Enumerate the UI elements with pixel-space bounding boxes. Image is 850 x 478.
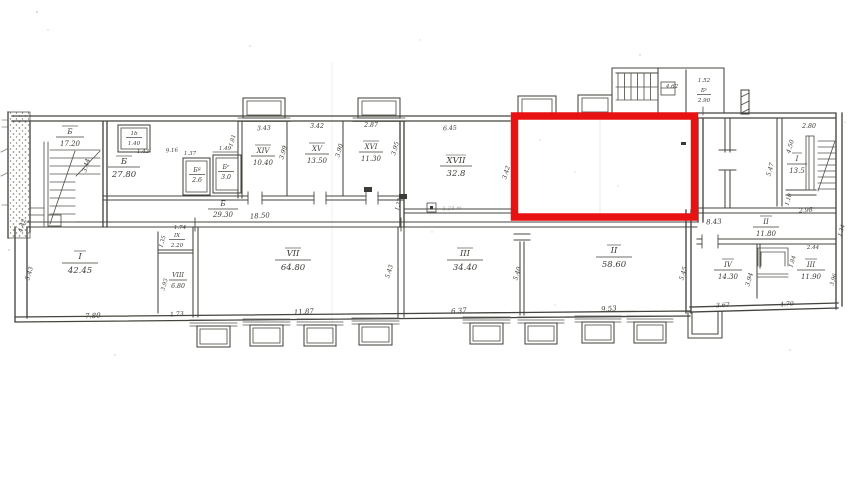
room-area: 17.20 — [60, 140, 81, 148]
room-area: 58.60 — [602, 260, 627, 270]
dim-stair-low-width: 2.98 — [798, 207, 813, 215]
room-area: 42.45 — [67, 266, 92, 276]
room-number: Ƃª — [192, 167, 201, 174]
dim-xiv-width: 3.43 — [257, 125, 271, 133]
dim-stair-right-width: 2.80 — [801, 123, 816, 130]
room-number: IV — [723, 261, 733, 269]
room-label-1b: 1b 1.40 — [126, 131, 142, 147]
room-number: II — [762, 218, 769, 226]
scan-fold-lines — [332, 62, 600, 338]
room-label-ii-main: II 58.60 — [596, 245, 632, 270]
dim-corridor-right: 1.34 — [837, 224, 846, 238]
room-label-xv: XV 13.50 — [305, 143, 329, 165]
room-label-xvii: XVII 32.8 — [440, 155, 472, 179]
room-area: 13.50 — [307, 157, 328, 165]
dim-1b-width: 1.43 — [137, 149, 150, 155]
dim-g27-height: 3.44 — [81, 158, 92, 173]
dim-xvi-height: 3.95 — [390, 141, 401, 156]
room-label-stair-left: Ƃ 17.20 — [56, 126, 84, 148]
room-label-stair-right: I 13.5 — [787, 153, 807, 175]
room-area: 32.8 — [447, 169, 467, 179]
room-label-i: I 42.45 — [62, 251, 98, 276]
dim-xvi-width: 2.87 — [363, 122, 378, 129]
dim-i-height: 5.43 — [24, 266, 35, 281]
highlighted-room[interactable] — [515, 116, 695, 217]
room-area: 13.5 — [789, 167, 805, 175]
room-label-viii: VIII 6.80 — [169, 272, 187, 290]
wall-junction-mark — [364, 187, 372, 192]
dim-mid-right-height: 5.47 — [765, 162, 776, 177]
room-number: XVII — [446, 156, 467, 166]
room-area: 27.80 — [111, 170, 137, 180]
room-area: 2.90 — [697, 98, 711, 104]
room-label-gp: 1.52 Ƃᵖ 2.90 — [697, 78, 711, 104]
note-xvii: 5.24 m — [442, 206, 462, 213]
room-area: 10.40 — [253, 159, 274, 167]
dim-iii-height: 5.40 — [512, 266, 523, 281]
dim-iii-width: 6.37 — [451, 306, 468, 315]
stairs-right — [806, 136, 835, 191]
dim-corridor-length: 18.50 — [250, 211, 271, 220]
dim-ii-width: 9.53 — [601, 304, 618, 313]
room-area: 11.90 — [801, 273, 822, 281]
highlight-rectangle[interactable] — [515, 116, 695, 217]
room-area: 14.30 — [718, 273, 739, 281]
room-number: Ƃᵖ — [700, 88, 708, 94]
room-label-vii: VII 64.80 — [275, 248, 311, 273]
dim-iii-r-height: 3.96 — [829, 273, 838, 287]
dim-ii-height: 5.45 — [678, 266, 689, 281]
room-number: Ƃ — [66, 128, 72, 136]
room-number: III — [459, 249, 471, 259]
dim-viii-height: 3.93 — [160, 278, 169, 292]
room-label-g27: Ƃ 27.80 — [108, 156, 140, 180]
room-area: 29.30 — [212, 211, 234, 219]
top-structure — [616, 73, 749, 115]
room-area: 1.40 — [128, 141, 141, 147]
room-label-ix: IX 2.20 — [169, 233, 185, 249]
room-number: I — [77, 252, 82, 262]
dim-iv-height: 3.94 — [744, 272, 755, 287]
room-number: I — [795, 155, 799, 163]
dim-ge-width: 1.49 — [219, 146, 232, 152]
room-area: 6.80 — [171, 283, 185, 290]
room-number: XVI — [364, 143, 378, 151]
porch — [688, 312, 722, 338]
dim-redbox-height: 3.42 — [501, 165, 512, 180]
dim-closet-gap: 1.37 — [184, 151, 197, 157]
dim-gap-i: 1.73 — [170, 311, 184, 319]
wall-junction-mark — [399, 194, 407, 199]
stove-symbol — [427, 203, 436, 212]
room-area: 2.20 — [170, 243, 184, 249]
dim-xv-width: 3.42 — [310, 123, 324, 130]
dim-i-width: 7.80 — [85, 311, 102, 320]
dim-ix-width: 1.74 — [174, 225, 187, 231]
stairs-left — [30, 142, 100, 226]
chimney-stub — [741, 90, 749, 114]
dim-top-structure: 4.62 — [665, 84, 679, 90]
room-number: XV — [311, 145, 323, 153]
room-area: 3.0 — [221, 174, 231, 181]
dim-vii-height: 5.43 — [384, 264, 395, 279]
room-label-corridor-g: Ƃ 29.30 — [208, 200, 238, 219]
windows-bottom — [190, 312, 722, 347]
room-number: II — [610, 246, 618, 256]
dim-iv-width: 3.62 — [716, 302, 730, 310]
room-label-xvi: XVI 11.30 — [359, 141, 383, 163]
dim-ix-height: 1.35 — [158, 235, 167, 249]
dim-corridor-ii-length: 8.43 — [706, 218, 723, 227]
room-number: VII — [287, 249, 300, 259]
room-label-iii-right: III 11.90 — [797, 259, 825, 281]
room-label-ge: Ƃᵉ 3.0 — [218, 164, 234, 181]
dim-iii-r-d1: 2.44 — [806, 245, 820, 251]
room-label-xiv: XIV 10.40 — [251, 145, 275, 167]
floor-plan-drawing: Ƃ 17.20 4.42 1b 1.40 1.43 Ƃ 27.80 3.44 1… — [0, 0, 850, 478]
wall-tick-in-highlight — [681, 142, 686, 145]
room-number: Ƃ — [120, 157, 128, 167]
dim-vii-width: 11.87 — [294, 307, 315, 316]
room-area: 34.40 — [453, 263, 478, 273]
room-number: XIV — [256, 147, 271, 155]
dim-xvii-width: 6.45 — [443, 125, 457, 133]
dim-top-room-width: 1.52 — [698, 78, 711, 84]
room-label-iv: IV 14.30 — [714, 259, 742, 281]
dim-closets-width: 9.16 — [166, 148, 179, 155]
stipple-wall — [1, 112, 30, 238]
room-label-ga: Ƃª 2.6 — [189, 167, 205, 184]
room-label-iii-main: III 34.40 — [447, 248, 483, 273]
partition-walls — [27, 68, 836, 317]
room-area: 64.80 — [281, 263, 306, 273]
room-area: 11.80 — [756, 230, 777, 238]
dim-iii-r-d2: 1.84 — [788, 255, 797, 269]
room-number: 1b — [130, 131, 137, 137]
room-number: IX — [173, 233, 181, 239]
dim-iii-r-width: 4.70 — [779, 301, 794, 309]
room-number: III — [806, 261, 816, 269]
room-label-corridor-ii: II 11.80 — [753, 216, 779, 238]
room-area: 11.30 — [361, 155, 382, 163]
room-area: 2.6 — [191, 177, 202, 184]
room-number: Ƃᵉ — [222, 164, 231, 171]
room-number: VIII — [172, 272, 184, 279]
floor-plan-scan: Ƃ 17.20 4.42 1b 1.40 1.43 Ƃ 27.80 3.44 1… — [0, 0, 850, 478]
room-number: Ƃ — [219, 200, 225, 208]
